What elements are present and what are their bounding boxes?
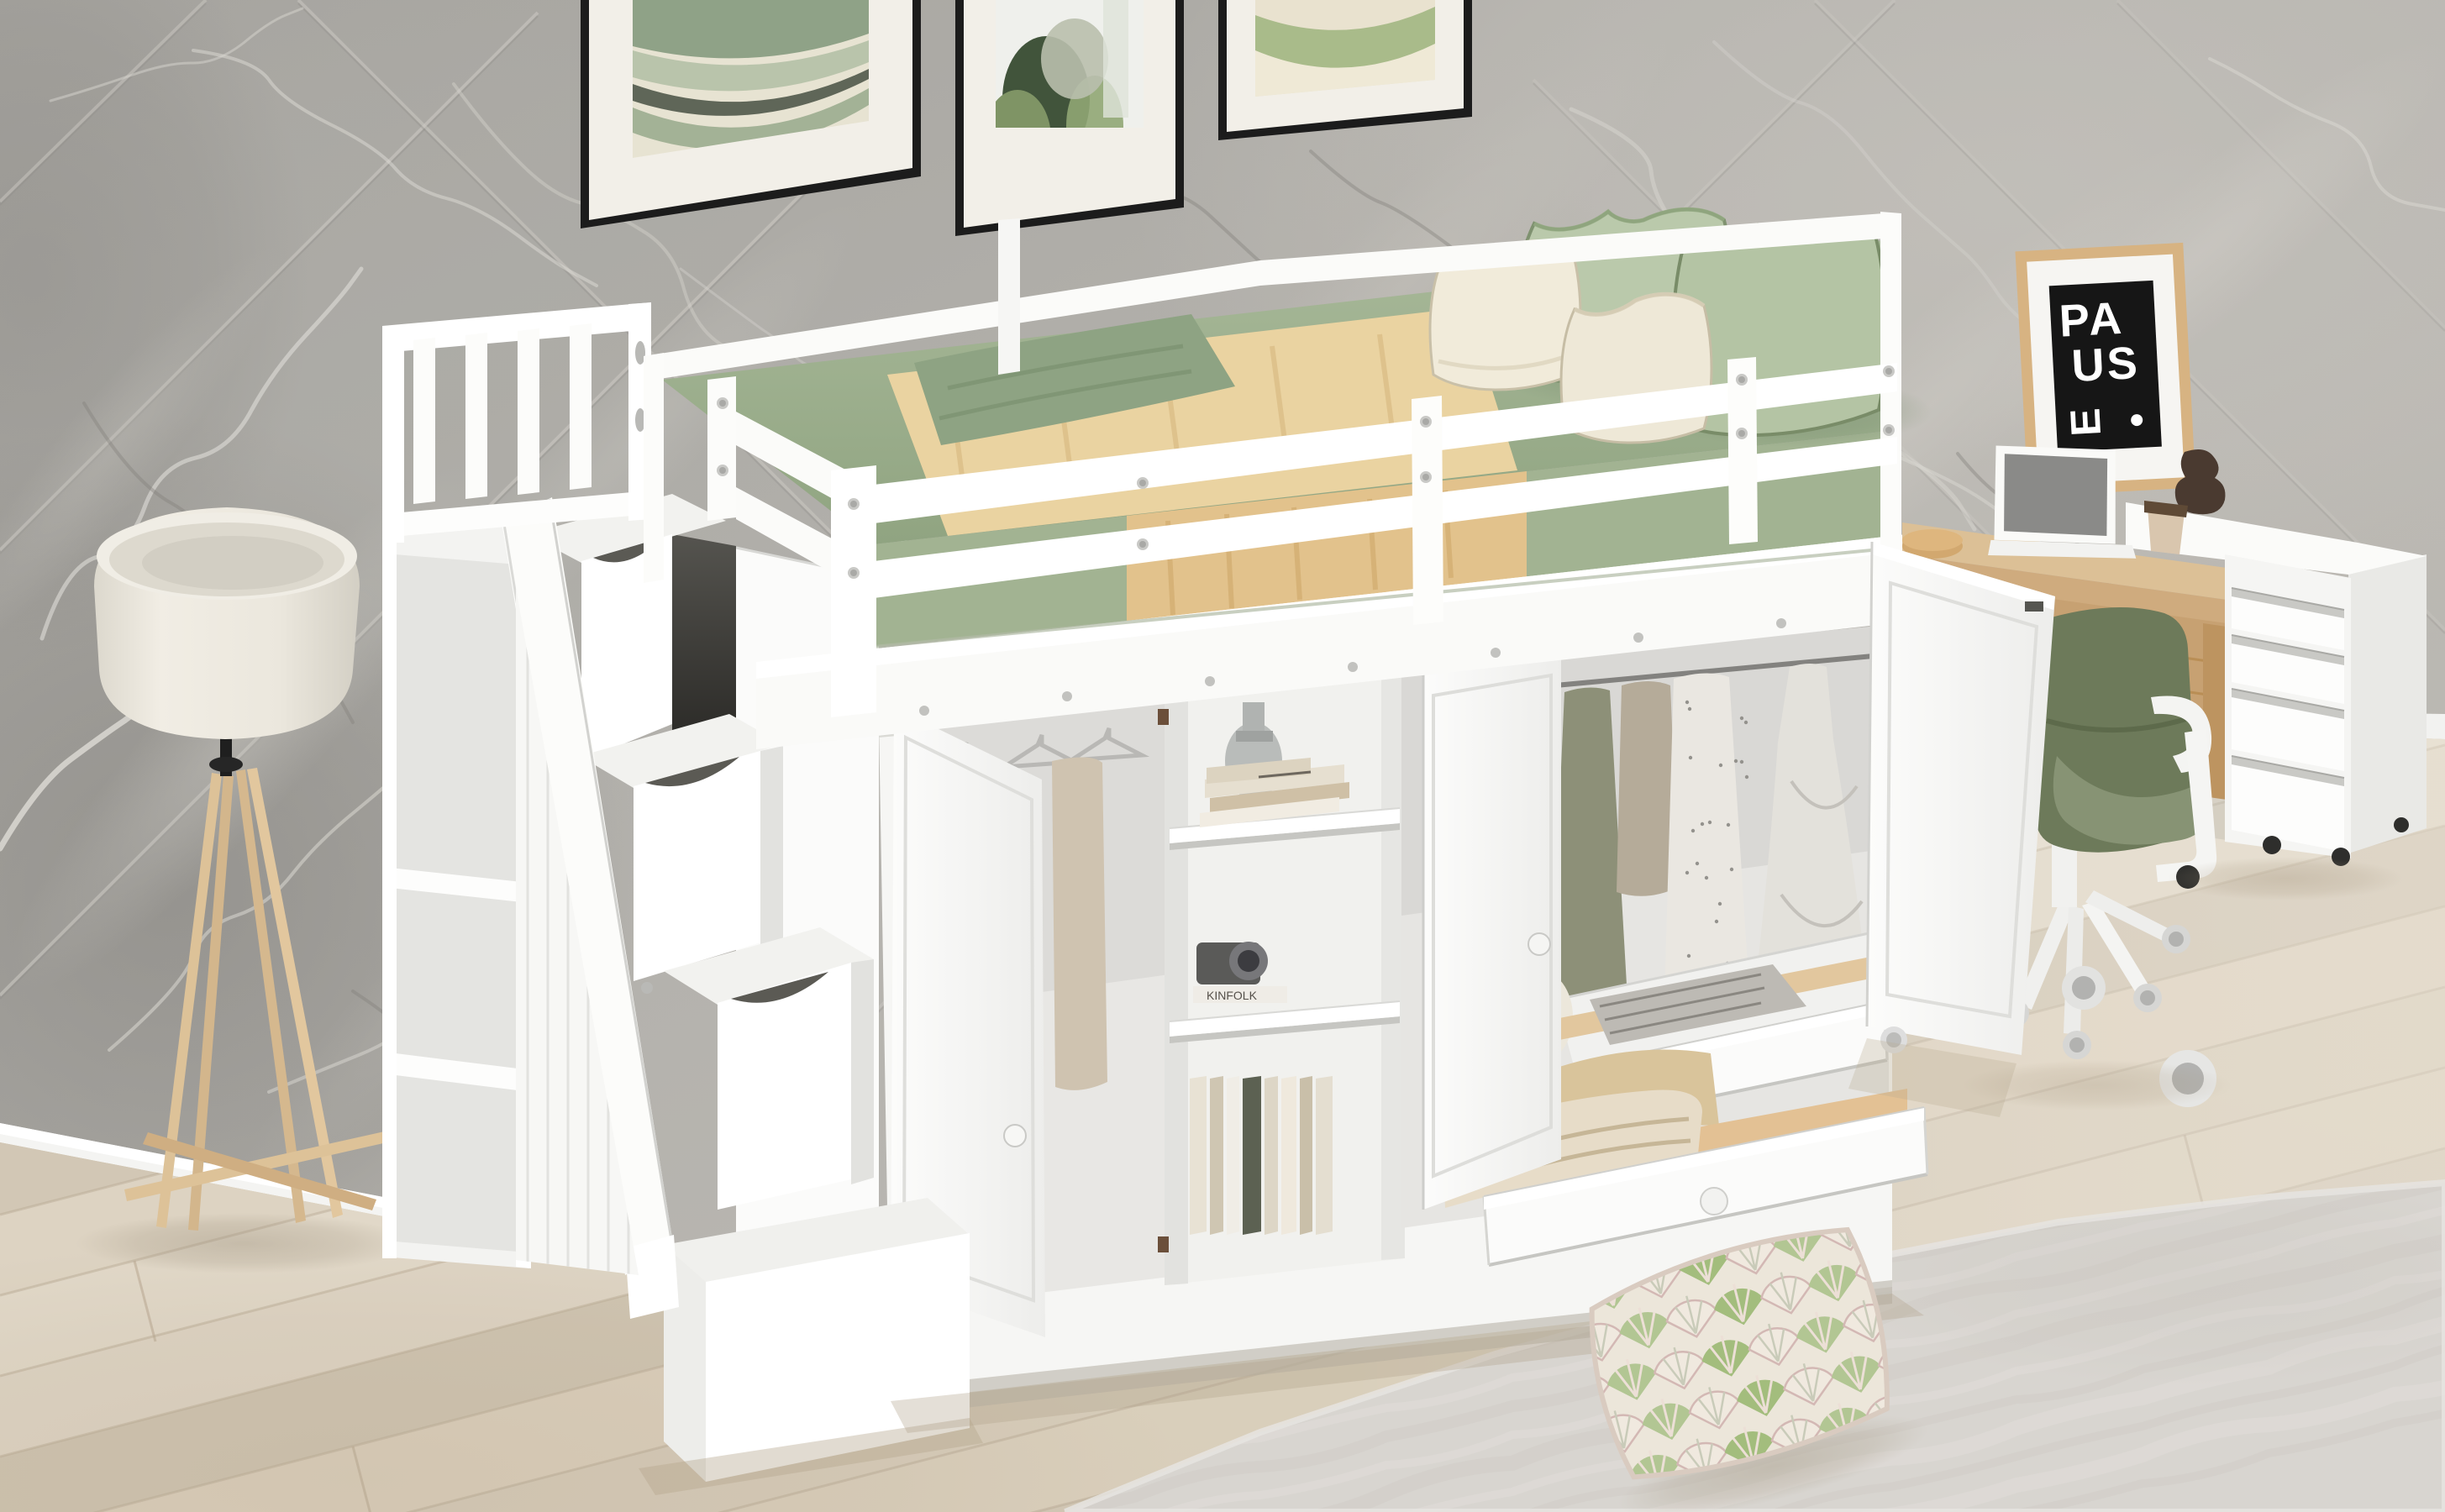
svg-text:KINFOLK: KINFOLK: [1207, 989, 1258, 1002]
svg-text:US: US: [2070, 338, 2141, 391]
svg-text:E: E: [2061, 407, 2110, 437]
